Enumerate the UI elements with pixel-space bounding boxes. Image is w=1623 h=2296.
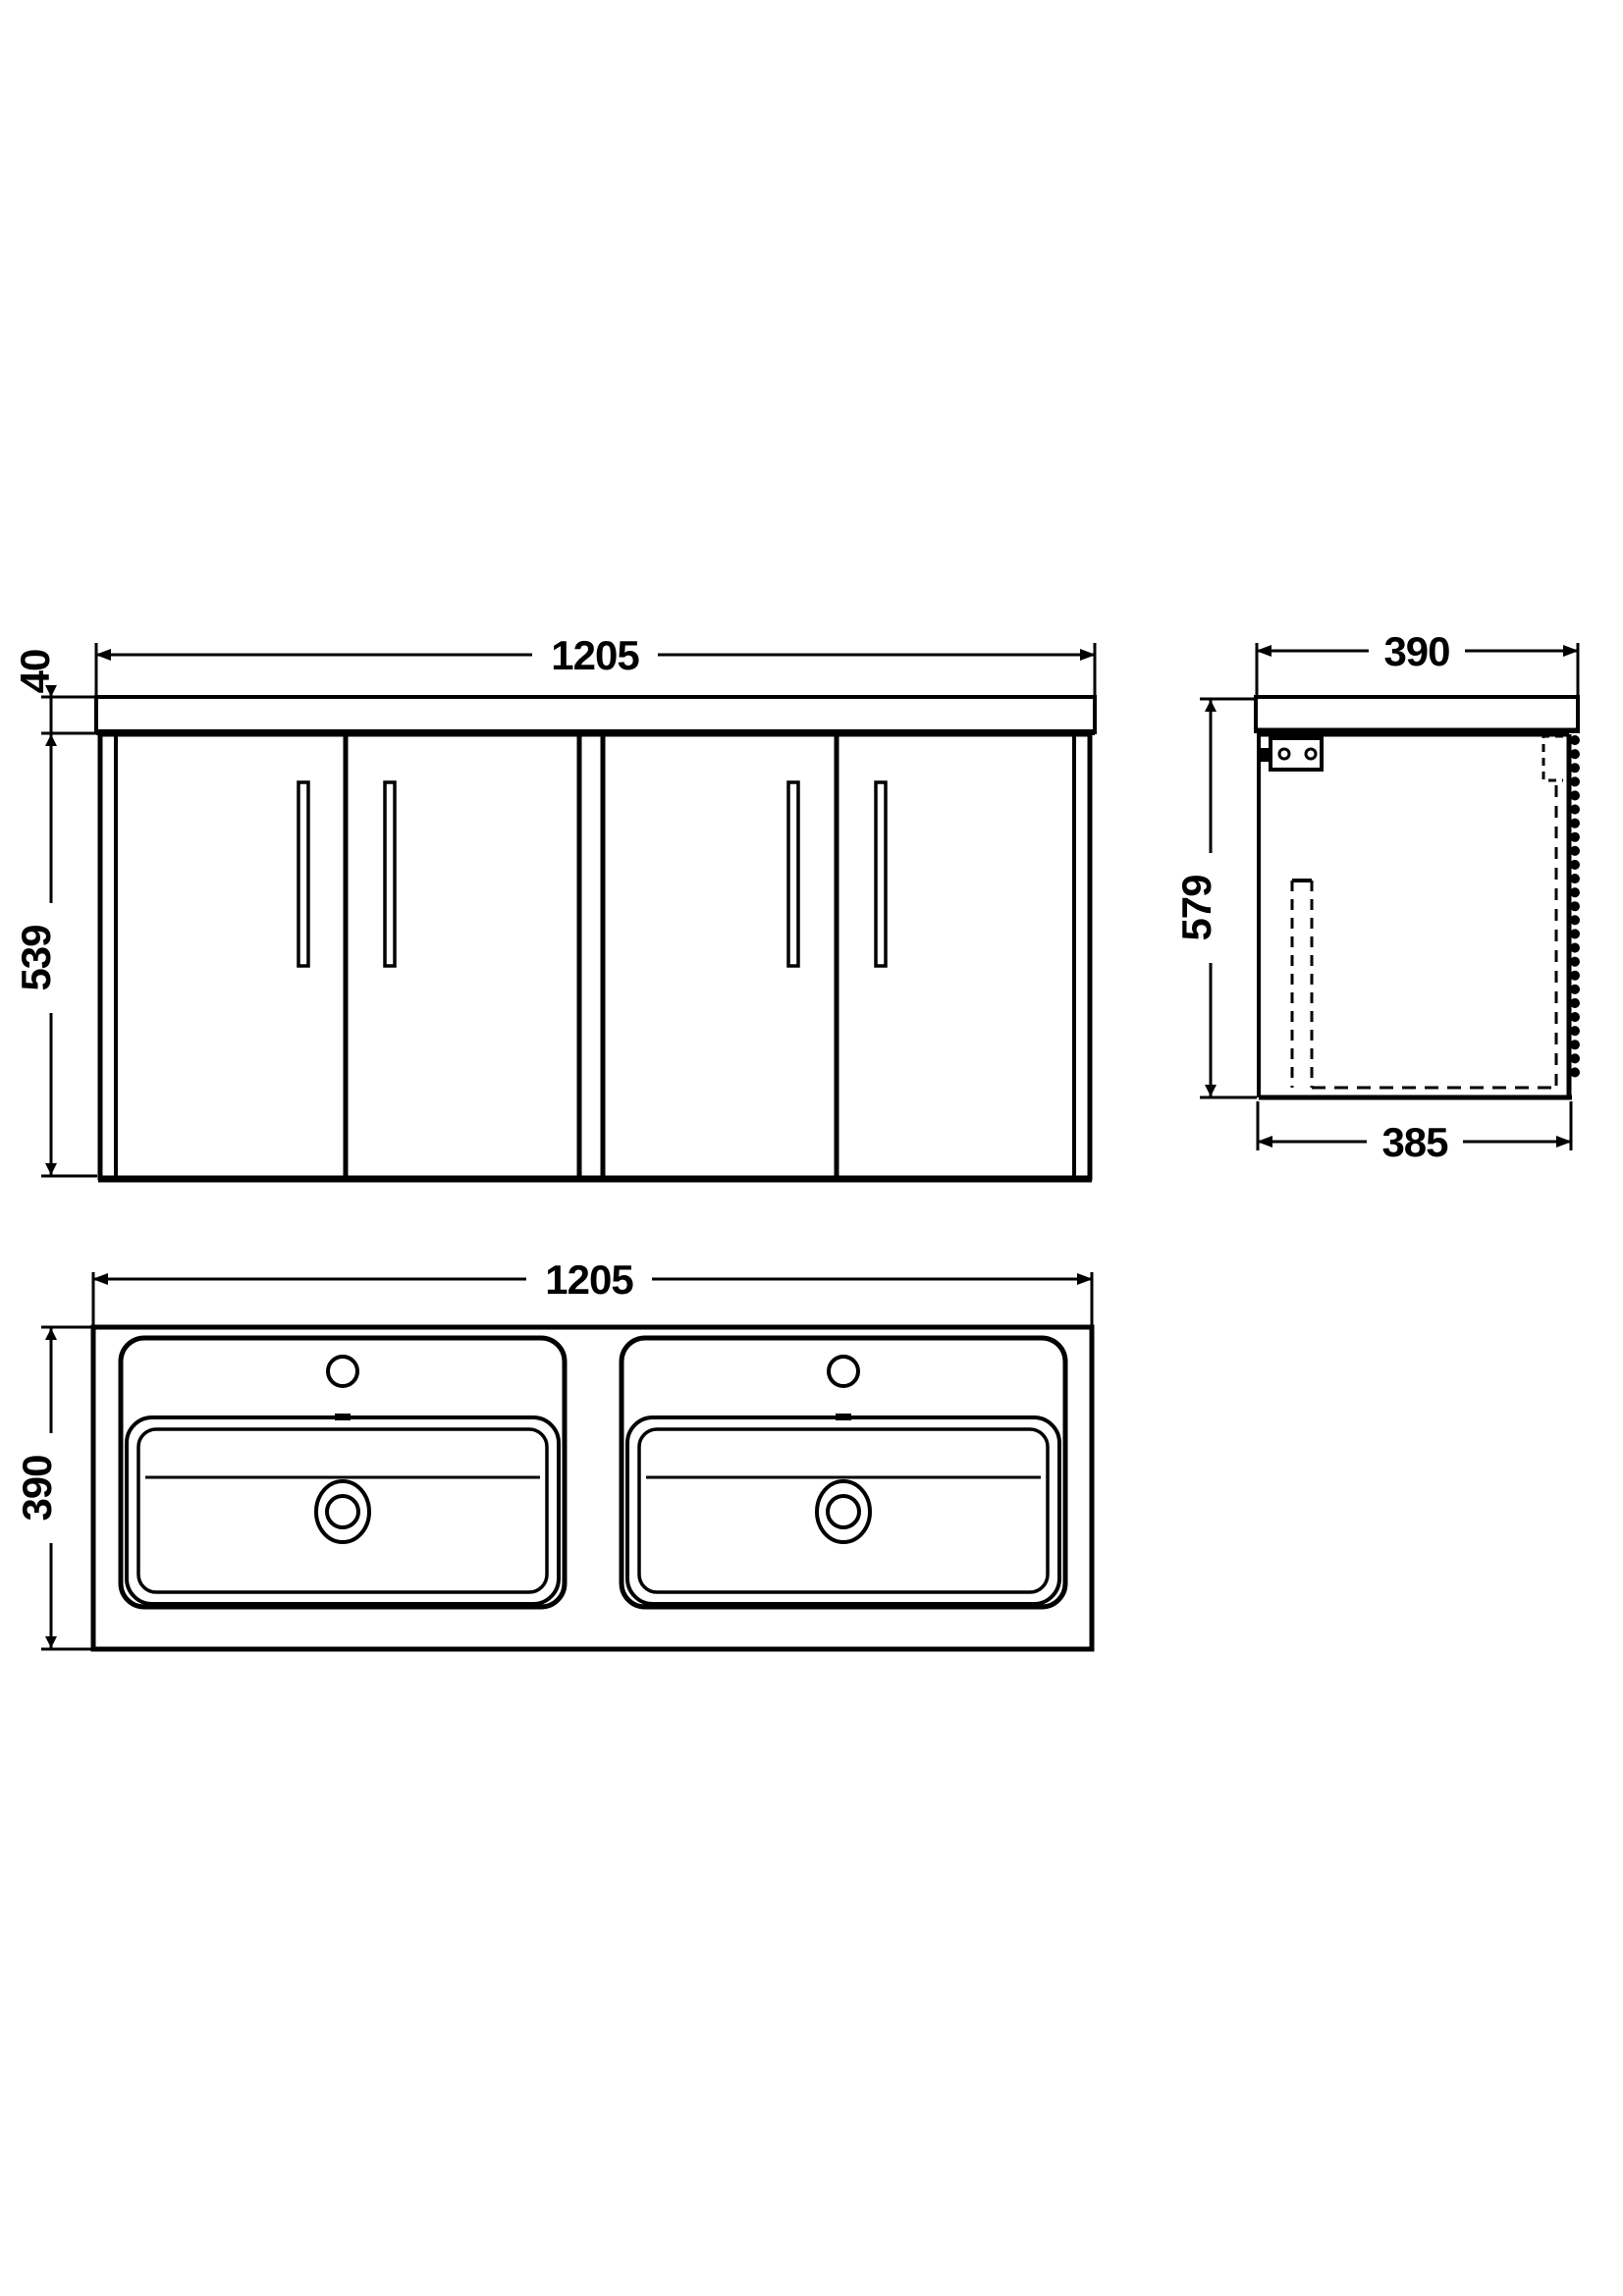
dimension-arrow xyxy=(45,1163,57,1175)
bracket-wall-hook xyxy=(1258,748,1271,762)
basin-right-outline xyxy=(622,1338,1065,1607)
basin-right-bowl-inner xyxy=(639,1429,1048,1592)
front-worktop xyxy=(96,697,1095,732)
door-handle-4 xyxy=(876,782,886,966)
waste-drain-right-inner xyxy=(828,1496,859,1527)
tap-hole-left xyxy=(328,1357,357,1386)
side-worktop xyxy=(1256,697,1578,731)
basin-left-bowl-inner xyxy=(138,1429,547,1592)
side-depth-dimension-label: 390 xyxy=(1383,628,1449,674)
door-handle-3 xyxy=(788,782,798,966)
door-handle-1 xyxy=(298,782,308,966)
side-elevation-view: 390 579 385 xyxy=(1173,628,1578,1165)
front-worktop-height-dimension-label: 40 xyxy=(12,650,58,694)
dimension-arrow xyxy=(1205,700,1217,712)
waste-drain-right-outer xyxy=(817,1481,870,1542)
plan-depth-dimension-label: 390 xyxy=(14,1455,60,1521)
door-handle-2 xyxy=(385,782,395,966)
waste-drain-left-outer xyxy=(316,1481,369,1542)
hidden-hanging-rail xyxy=(1543,736,1563,780)
plan-view-basin: 1205 390 xyxy=(14,1256,1092,1649)
technical-drawing-sheet: 1205 40 539 xyxy=(0,0,1623,2296)
basin-left-outline xyxy=(121,1338,565,1607)
waste-drain-left-inner xyxy=(327,1496,358,1527)
basin-right-bowl-outer xyxy=(627,1417,1059,1604)
dimension-arrow xyxy=(1205,1085,1217,1096)
side-height-dimension-label: 579 xyxy=(1173,875,1219,940)
plan-width-dimension-label: 1205 xyxy=(545,1256,633,1303)
front-cabinet-height-dimension-label: 539 xyxy=(13,925,59,990)
basin-left-bowl-outer xyxy=(127,1417,559,1604)
dimension-arrow xyxy=(45,734,57,746)
front-elevation-view: 1205 40 539 xyxy=(12,632,1095,1180)
plan-worktop-outline xyxy=(93,1327,1092,1649)
tap-hole-right xyxy=(829,1357,858,1386)
dimension-arrow xyxy=(45,1328,57,1340)
drawing-canvas: 1205 40 539 xyxy=(0,0,1623,2296)
side-base-depth-dimension-label: 385 xyxy=(1381,1119,1448,1165)
front-cabinet-body xyxy=(100,734,1090,1178)
dimension-arrow xyxy=(45,1636,57,1648)
front-width-dimension-label: 1205 xyxy=(551,632,639,678)
